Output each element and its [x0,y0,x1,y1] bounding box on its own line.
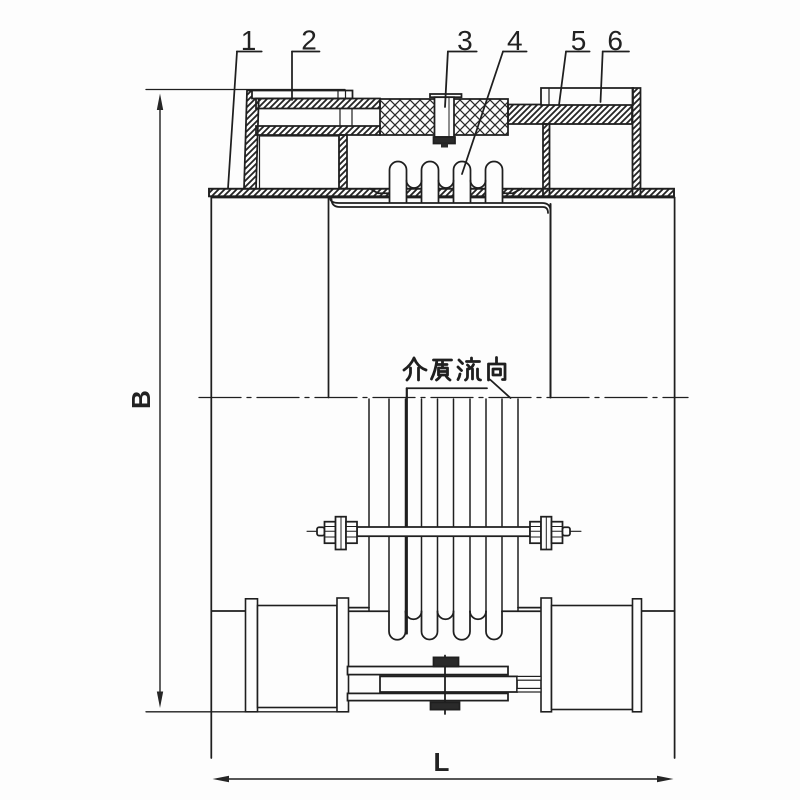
svg-text:L: L [434,747,450,777]
svg-text:B: B [126,390,156,409]
